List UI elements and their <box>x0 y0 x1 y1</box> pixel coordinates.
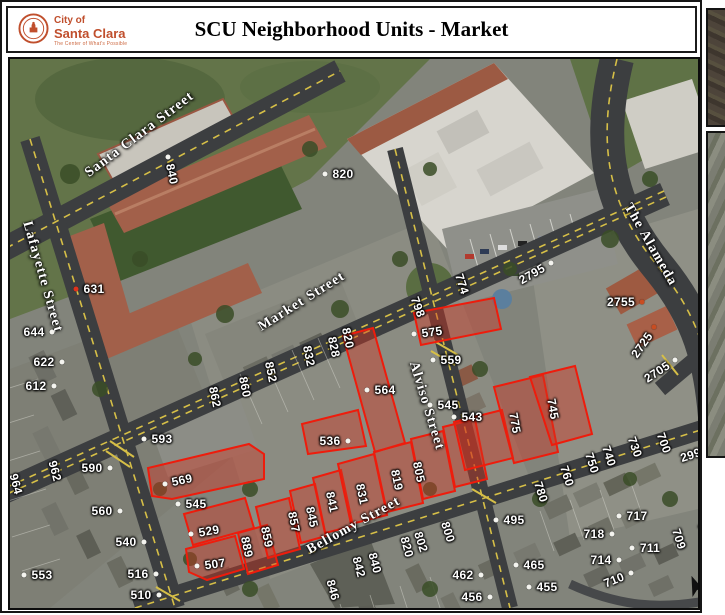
parcel-point-dot <box>428 403 433 408</box>
address-label-495: 495 <box>504 513 525 527</box>
address-label-590: 590 <box>82 461 103 475</box>
parcel-point-dot <box>345 439 350 444</box>
parcel-point-dot <box>616 558 621 563</box>
parcel-point-dot <box>640 300 645 305</box>
parcel-point-dot <box>431 358 436 363</box>
parcel-point-dot <box>153 572 158 577</box>
parcel-point-dot <box>527 585 532 590</box>
parcel-point-dot <box>176 502 181 507</box>
parcel-point-dot <box>166 154 171 159</box>
parcel-point-dot <box>74 287 79 292</box>
address-label-465: 465 <box>524 558 545 572</box>
parcel-point-dot <box>59 360 64 365</box>
parcel-point-dot <box>51 384 56 389</box>
parcel-point-dot <box>478 573 483 578</box>
parcel-point-dot <box>117 509 122 514</box>
parcel-point-dot <box>49 330 54 335</box>
address-label-455: 455 <box>537 580 558 594</box>
parcel-point-dot <box>630 546 635 551</box>
parcel-point-dot <box>672 358 677 363</box>
page-title: SCU Neighborhood Units - Market <box>8 17 695 42</box>
address-label-516: 516 <box>128 567 149 581</box>
address-label-510: 510 <box>131 588 152 602</box>
parcel-point-dot <box>548 261 553 266</box>
parcel-point-dot <box>189 532 194 537</box>
parcel-point-dot <box>365 388 370 393</box>
adjacent-page-fragment-bottom <box>706 131 725 458</box>
address-label-560: 560 <box>92 504 113 518</box>
parcel-point-dot <box>514 563 519 568</box>
address-label-564-highlighted: 564 <box>375 383 396 397</box>
address-label-536-highlighted: 536 <box>320 434 341 448</box>
address-label-717: 717 <box>627 509 648 523</box>
parcel-point-dot <box>162 481 167 486</box>
address-label-553: 553 <box>32 568 53 582</box>
address-label-540: 540 <box>116 535 137 549</box>
address-label-711: 711 <box>640 541 660 555</box>
address-label-575-highlighted: 575 <box>421 324 444 341</box>
address-label-714: 714 <box>591 553 612 567</box>
parcel-point-dot <box>323 172 328 177</box>
parcel-point-dot <box>452 415 457 420</box>
address-label-545: 545 <box>186 497 207 511</box>
parcel-point-dot <box>609 532 614 537</box>
address-label-593: 593 <box>152 432 173 446</box>
adjacent-page-fragment-top <box>706 8 725 127</box>
header-bar: City of Santa Clara The Center of What's… <box>6 6 697 53</box>
address-label-462: 462 <box>453 568 474 582</box>
parcel-point-dot <box>494 518 499 523</box>
address-label-718: 718 <box>584 527 605 541</box>
parcel-point-dot <box>156 593 161 598</box>
address-label-612: 612 <box>26 379 47 393</box>
address-label-559: 559 <box>441 353 462 367</box>
address-label-622: 622 <box>34 355 55 369</box>
parcel-point-dot <box>22 573 27 578</box>
page: { "header": { "logo": { "line1": "City o… <box>0 0 725 615</box>
parcel-point-dot <box>142 437 147 442</box>
address-label-820: 820 <box>333 167 354 181</box>
map-image: Santa Clara StreetLafayette StreetMarket… <box>8 57 700 610</box>
parcel-point-dot <box>628 571 633 576</box>
parcel-point-dot <box>617 514 622 519</box>
parcel-point-dot <box>195 564 200 569</box>
parcel-point-dot <box>107 466 112 471</box>
address-label-507-highlighted: 507 <box>204 556 227 573</box>
parcel-point-dot <box>487 595 492 600</box>
parcel-point-dot <box>412 332 417 337</box>
parcel-point-dot <box>141 540 146 545</box>
address-label-2755: 2755 <box>607 295 635 309</box>
address-label-631: 631 <box>84 282 105 296</box>
parcel-point-dot <box>652 325 657 330</box>
address-label-543-highlighted: 543 <box>462 410 483 424</box>
logo-tagline: The Center of What's Possible <box>54 42 127 47</box>
address-label-545: 545 <box>438 398 459 412</box>
address-label-456: 456 <box>462 590 483 604</box>
address-label-644: 644 <box>24 325 45 339</box>
